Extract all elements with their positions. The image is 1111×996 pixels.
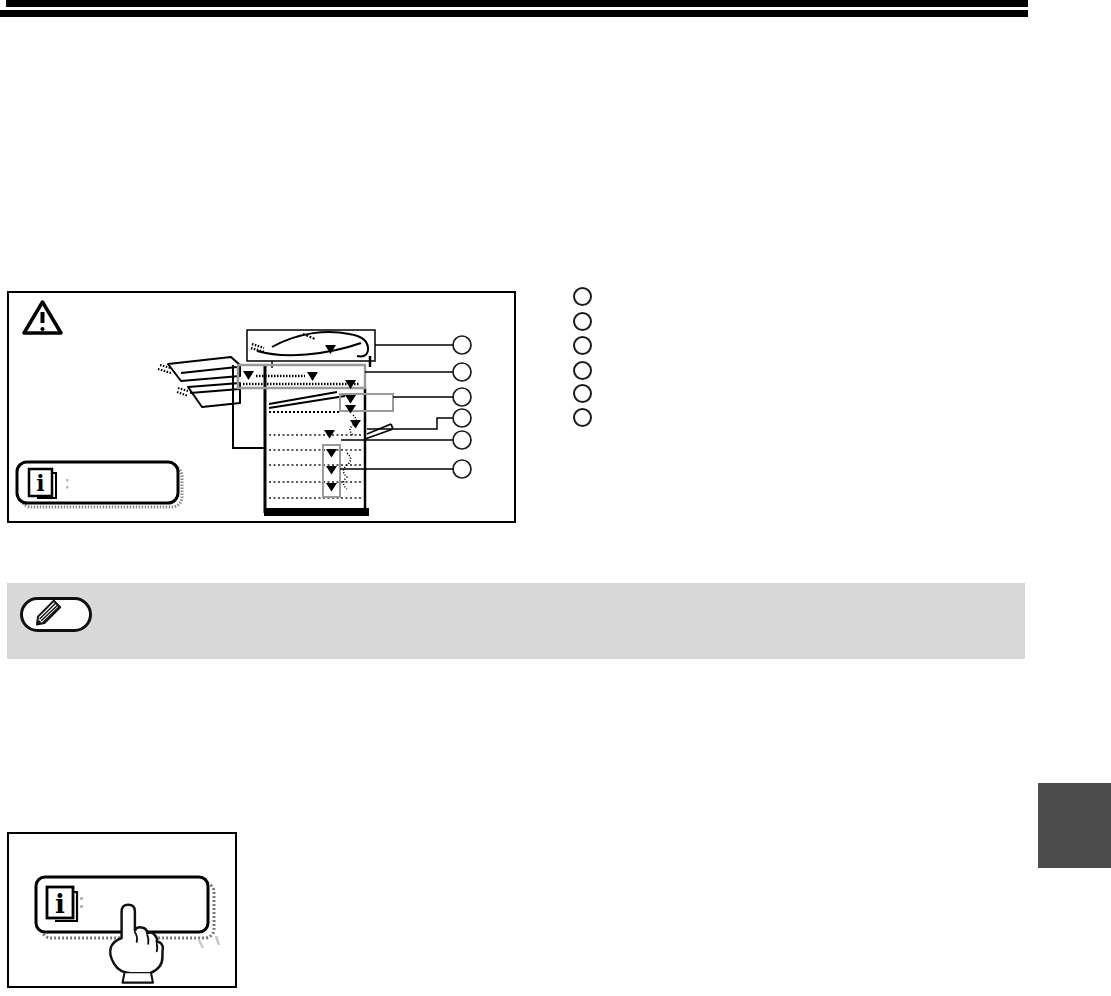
legend-circle-column [573, 287, 595, 429]
legend-circle [573, 408, 592, 427]
callout-leader-lines [340, 345, 453, 469]
figure-callout-circles [453, 336, 471, 478]
output-trays [158, 357, 240, 407]
legend-circle [573, 312, 592, 331]
warning-triangle-icon [24, 302, 61, 333]
header-rule-bottom [0, 10, 1028, 17]
manual-page: { "page": { "kind": "operation manual pa… [0, 0, 1111, 996]
legend-circle [573, 384, 592, 403]
cassette-callout-box [323, 445, 340, 497]
misfeed-diagram-illustration: i [9, 293, 514, 521]
misfeed-diagram-box: i [7, 291, 516, 523]
note-bar [7, 583, 1025, 659]
information-key-icon: i [47, 887, 83, 921]
information-key-small: i [17, 462, 182, 507]
side-cover-callout-box [238, 365, 365, 389]
feeder-callout-box [247, 330, 375, 361]
info-key-instruction-illustration: i [9, 834, 235, 986]
svg-text:i: i [55, 889, 65, 919]
legend-circle [573, 361, 592, 380]
legend-circle [573, 336, 592, 355]
info-key-instruction-box: i [7, 832, 237, 988]
fusing-callout-box [340, 394, 393, 414]
chapter-edge-tab [1038, 783, 1111, 868]
svg-text:i: i [36, 470, 44, 496]
header-rule-top [6, 0, 1028, 7]
note-pill [20, 597, 92, 632]
legend-circle [573, 287, 592, 306]
pencil-note-icon [23, 600, 89, 629]
